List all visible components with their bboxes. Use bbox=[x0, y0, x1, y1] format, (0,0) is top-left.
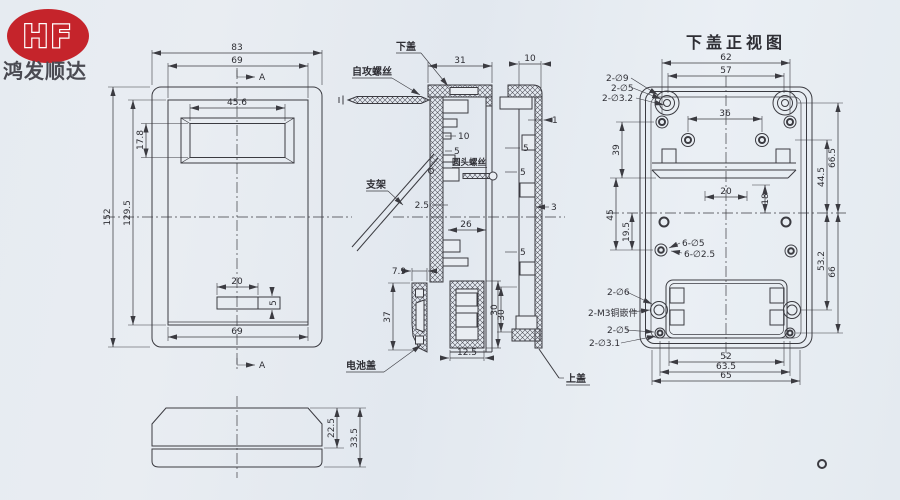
logo-brand-text: HF bbox=[22, 19, 73, 55]
dim-18: 18 bbox=[761, 193, 771, 205]
label-2d5-bottom: 2-∅5 bbox=[607, 326, 630, 336]
label-bracket: 支架 bbox=[365, 178, 386, 191]
dim-2-5: 2.5 bbox=[415, 201, 429, 211]
dim-26: 26 bbox=[460, 220, 472, 230]
round-head-screw bbox=[463, 172, 497, 180]
front-dims: 83 69 45.6 17.8 152 129.5 20 5 6 bbox=[103, 43, 322, 347]
dim-10: 10 bbox=[458, 132, 470, 142]
dim-62: 62 bbox=[720, 53, 731, 63]
dim-battery-width-top: 7.9 bbox=[392, 267, 407, 277]
label-bottom-cover: 下盖 bbox=[396, 40, 416, 53]
dim-inner-width-top: 69 bbox=[231, 56, 243, 66]
label-2d6: 2-∅6 bbox=[607, 288, 630, 298]
label-m3-insert: 2-M3铜嵌件 bbox=[588, 307, 637, 319]
section-marker-top: A bbox=[237, 70, 266, 83]
dim-inner-height: 129.5 bbox=[123, 200, 133, 226]
dim-5: 5 bbox=[454, 147, 460, 157]
dim-30: 30 bbox=[490, 304, 500, 316]
label-battery-cover: 电池盖 bbox=[346, 359, 376, 372]
section-marker-bottom: A bbox=[237, 358, 266, 371]
label-2d5-top: 2-∅5 bbox=[611, 84, 634, 94]
display-window-inner bbox=[190, 124, 285, 158]
dim-65: 65 bbox=[720, 371, 731, 381]
dim-slot-width: 20 bbox=[231, 277, 243, 287]
engineering-drawing: HF 鸿发顺达 A A 83 bbox=[0, 0, 900, 500]
enclosure-inner-face bbox=[168, 100, 308, 325]
dim-19-5: 19.5 bbox=[622, 222, 632, 242]
bottom-cover-view: 下盖正视图 bbox=[588, 33, 846, 385]
dim-53-2: 53.2 bbox=[817, 251, 827, 271]
dim-battery-width-bottom: 12.5 bbox=[457, 348, 477, 358]
dim-rib-5b: 5 bbox=[520, 168, 526, 178]
company-name: 鸿发顺达 bbox=[3, 59, 87, 83]
dim-window-width: 45.6 bbox=[227, 98, 247, 108]
label-6d5: 6-∅5 bbox=[682, 239, 705, 249]
dim-total-height: 33.5 bbox=[350, 428, 360, 448]
dim-slot-height: 5 bbox=[269, 300, 279, 306]
section-top-cover: 10 1 5 5 3 5 30 上盖 bbox=[490, 54, 590, 385]
section-letter: A bbox=[259, 361, 266, 371]
display-window-outer bbox=[181, 118, 294, 163]
label-2d31: 2-∅3.1 bbox=[589, 339, 620, 349]
shelf bbox=[652, 149, 796, 178]
dim-wall-1: 1 bbox=[552, 116, 558, 126]
front-view: A A 83 69 45.6 17.8 152 129.5 bbox=[103, 43, 352, 372]
corner-screw-boss-bottom-left bbox=[651, 302, 668, 339]
ring-mark bbox=[818, 460, 826, 468]
label-round-head-screw: 圆头螺丝 bbox=[452, 157, 487, 168]
battery-cover-piece bbox=[412, 283, 427, 352]
label-self-tapping-screw: 自攻螺丝 bbox=[352, 65, 392, 78]
dim-36: 36 bbox=[719, 109, 731, 119]
dim-depth: 31 bbox=[454, 56, 465, 66]
dim-57: 57 bbox=[720, 66, 731, 76]
battery-compartment bbox=[666, 280, 787, 338]
corner-screw-boss-top-left bbox=[655, 91, 679, 115]
dim-inner-width-bottom: 69 bbox=[231, 327, 243, 337]
label-2d9: 2-∅9 bbox=[606, 74, 629, 84]
self-tapping-screw bbox=[339, 96, 429, 105]
dim-depth: 10 bbox=[524, 54, 536, 64]
label-2d32: 2-∅3.2 bbox=[602, 94, 633, 104]
dim-top-cover-height: 22.5 bbox=[327, 418, 337, 438]
label-top-cover: 上盖 bbox=[566, 372, 586, 385]
view-title: 下盖正视图 bbox=[686, 33, 786, 52]
dim-outer-height: 152 bbox=[103, 208, 113, 225]
dim-45: 45 bbox=[606, 209, 616, 220]
corner-screw-boss-bottom-right bbox=[784, 302, 801, 339]
dim-66-5: 66.5 bbox=[828, 148, 838, 168]
section-letter: A bbox=[259, 73, 266, 83]
side-wall-section bbox=[430, 97, 443, 282]
top-cap-section bbox=[508, 85, 542, 97]
dim-rib-5c: 5 bbox=[520, 248, 526, 258]
corner-screw-boss-top-right bbox=[773, 91, 797, 115]
dim-wall-3: 3 bbox=[551, 203, 557, 213]
dim-rib-5a: 5 bbox=[523, 144, 529, 154]
dim-battery-height: 37 bbox=[383, 311, 393, 322]
dim-window-height: 17.8 bbox=[136, 130, 146, 150]
dim-52: 52 bbox=[720, 352, 731, 362]
dim-outer-width: 83 bbox=[231, 43, 242, 53]
dim-44-5: 44.5 bbox=[817, 167, 827, 187]
logo: HF 鸿发顺达 bbox=[3, 9, 89, 83]
profile-view: 22.5 33.5 bbox=[152, 396, 366, 478]
label-6d25: 6-∅2.5 bbox=[684, 250, 715, 260]
hole-pair-mid bbox=[682, 134, 769, 147]
dim-66: 66 bbox=[828, 266, 838, 278]
front-wall-section bbox=[535, 97, 542, 348]
dim-20: 20 bbox=[720, 187, 732, 197]
dim-39: 39 bbox=[612, 144, 622, 156]
hole-pair-center bbox=[660, 218, 791, 227]
